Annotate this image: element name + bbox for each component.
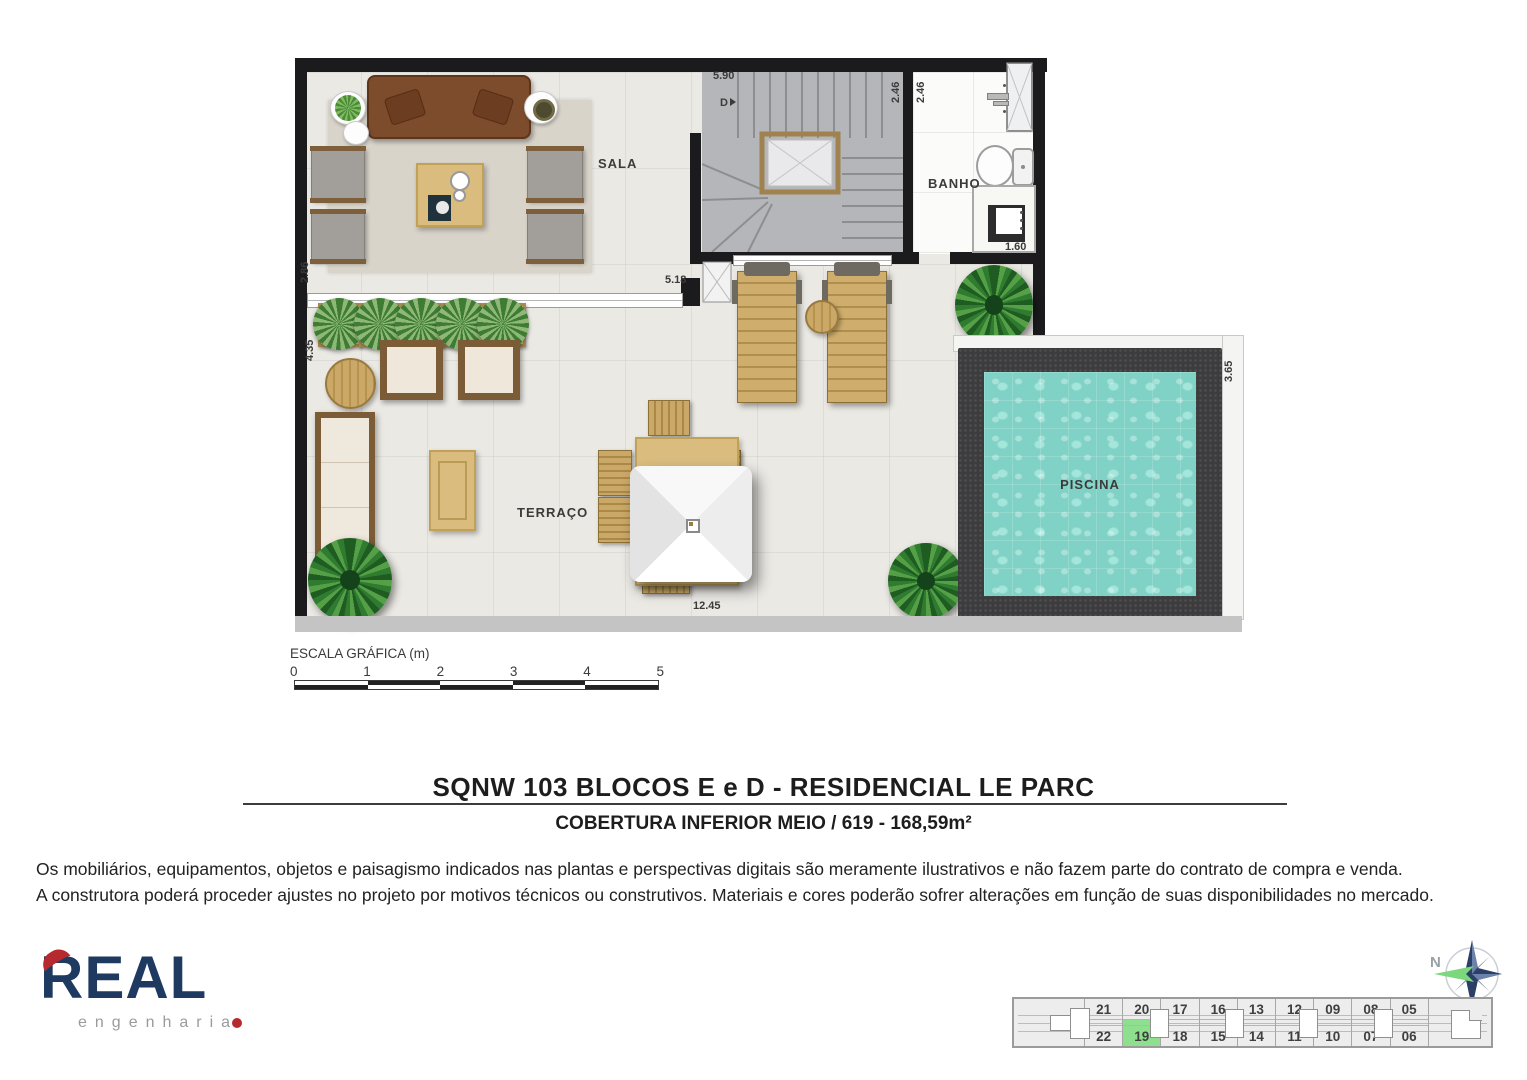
- wall-banho-bottom-a: [905, 252, 919, 264]
- potted-plant: [335, 95, 361, 121]
- palm-plant: [955, 265, 1033, 345]
- page-title: SQNW 103 BLOCOS E e D - RESIDENCIAL LE P…: [0, 772, 1527, 803]
- cup: [450, 171, 470, 191]
- table-tray: [533, 99, 555, 121]
- tick-label: 1: [363, 664, 371, 679]
- floor-plan: PISCINA SALA BANHO TERRAÇO 5.90 D 2.46 2…: [293, 55, 1243, 633]
- terraco-label: TERRAÇO: [517, 505, 588, 520]
- dim-terrace-height: 4.35: [304, 340, 316, 361]
- disclaimer: Os mobiliários, equipamentos, objetos e …: [36, 856, 1506, 908]
- tick-label: 0: [290, 664, 298, 679]
- page-subtitle: COBERTURA INFERIOR MEIO / 619 - 168,59m²: [0, 813, 1527, 835]
- disclaimer-line: Os mobiliários, equipamentos, objetos e …: [36, 856, 1506, 882]
- sala-armchair: [527, 211, 583, 262]
- dim-banho-side: 2.46: [915, 82, 927, 103]
- building-key-plan: 21 22 20 19 17 18 16 15 13 14 12 11: [1012, 997, 1493, 1048]
- table-inlay: [438, 461, 467, 520]
- book-art: [436, 201, 449, 214]
- dining-chair: [598, 450, 632, 496]
- scale-bar-graphic: [294, 680, 659, 690]
- dim-banho-width: 1.60: [1005, 241, 1026, 253]
- scale-bar-title: ESCALA GRÁFICA (m): [290, 646, 670, 661]
- terrace-round-table: [325, 358, 376, 409]
- wall-left: [295, 58, 307, 618]
- logo-red-dot: [232, 1018, 242, 1028]
- piscina-label: PISCINA: [1060, 477, 1120, 492]
- sala-coffee-table: [416, 163, 484, 227]
- cup: [453, 189, 466, 202]
- sun-lounger: [827, 271, 887, 403]
- toilet: [976, 145, 1014, 187]
- wall-top: [295, 58, 1047, 72]
- umbrella: [630, 466, 752, 582]
- keyplan-core: [1374, 1009, 1393, 1038]
- keyplan-column: 05 06: [1390, 999, 1429, 1046]
- tick-label: 3: [510, 664, 518, 679]
- unit-06: 06: [1391, 1025, 1428, 1046]
- title-divider: [243, 803, 1287, 805]
- scale-bar: ESCALA GRÁFICA (m) 0 1 2 3 4 5: [290, 646, 670, 690]
- unit-10: 10: [1314, 1025, 1351, 1046]
- wall-banho-left: [903, 70, 913, 254]
- keyplan-column: 09 10: [1313, 999, 1351, 1046]
- lounger-side-table: [805, 300, 839, 334]
- dim-terrace-width: 12.45: [693, 600, 721, 612]
- dim-pool-side: 3.65: [1223, 361, 1235, 382]
- keyplan-left-core: [1070, 1008, 1090, 1039]
- tick-label: 4: [583, 664, 591, 679]
- toilet-tank: [1012, 148, 1034, 186]
- dim-stair-direction: D: [720, 97, 736, 109]
- sala-side-table: [330, 91, 366, 125]
- floorplan-page: PISCINA SALA BANHO TERRAÇO 5.90 D 2.46 2…: [0, 0, 1527, 1080]
- shower-box: [1006, 62, 1033, 132]
- unit-05: 05: [1391, 999, 1428, 1020]
- palm-plant: [888, 543, 964, 619]
- dim-sala-width: 5.18: [665, 274, 686, 286]
- sun-lounger: [737, 271, 797, 403]
- brand-logo: REAL engenharia: [40, 948, 270, 1048]
- brand-tagline: engenharia: [78, 1014, 238, 1032]
- shower-control: [1003, 110, 1006, 113]
- terrace-armchair: [380, 340, 443, 400]
- sofa-pillow: [472, 88, 515, 126]
- brand-name: REAL: [40, 948, 270, 1008]
- keyplan-right-core-notch: [1469, 1010, 1482, 1021]
- unit-21: 21: [1085, 999, 1122, 1020]
- terrace-coffee-table: [429, 450, 476, 531]
- sala-armchair: [311, 148, 365, 201]
- faucet-dot: [1020, 227, 1023, 230]
- scale-bar-ticks: 0 1 2 3 4 5: [290, 664, 664, 679]
- unit-09: 09: [1314, 999, 1351, 1020]
- wall-stair-left: [690, 133, 701, 264]
- keyplan-core: [1150, 1009, 1169, 1038]
- keyplan-core: [1225, 1009, 1244, 1038]
- shower-head: [987, 93, 1009, 100]
- faucet-dot: [1020, 211, 1023, 214]
- keyplan-core: [1299, 1009, 1318, 1038]
- tick-label: 5: [656, 664, 664, 679]
- tick-label: 2: [437, 664, 445, 679]
- sala-sofa: [367, 75, 531, 139]
- book: [428, 195, 451, 221]
- banho-label: BANHO: [928, 176, 981, 191]
- disclaimer-line: A construtora poderá proceder ajustes no…: [36, 882, 1506, 908]
- dim-sala-height: 2.86: [299, 262, 311, 283]
- sala-side-table-small: [343, 121, 369, 145]
- wall-banho-bottom-b: [950, 252, 1045, 264]
- dim-top-width: 5.90: [713, 70, 734, 82]
- sala-label: SALA: [598, 156, 637, 171]
- shaft-box: [702, 261, 732, 303]
- faucet-dot: [1020, 219, 1023, 222]
- sala-side-table-right: [524, 91, 558, 124]
- terrace-armchair: [458, 340, 520, 400]
- sala-armchair: [311, 211, 365, 262]
- dining-chair: [598, 497, 632, 543]
- sala-armchair: [527, 148, 583, 201]
- north-label: N: [1430, 954, 1441, 971]
- sofa-pillow: [384, 88, 427, 126]
- pool-water: PISCINA: [984, 372, 1196, 596]
- dining-chair: [648, 400, 690, 436]
- shower-arm: [993, 101, 1009, 106]
- palm-plant: [308, 538, 392, 622]
- terrace-sofa: [315, 412, 375, 558]
- unit-22: 22: [1085, 1025, 1122, 1046]
- direction-arrow-icon: [730, 98, 736, 106]
- dim-stair-side: 2.46: [890, 82, 902, 103]
- shower-control: [1003, 84, 1006, 87]
- bottom-edge-band: [295, 616, 1242, 632]
